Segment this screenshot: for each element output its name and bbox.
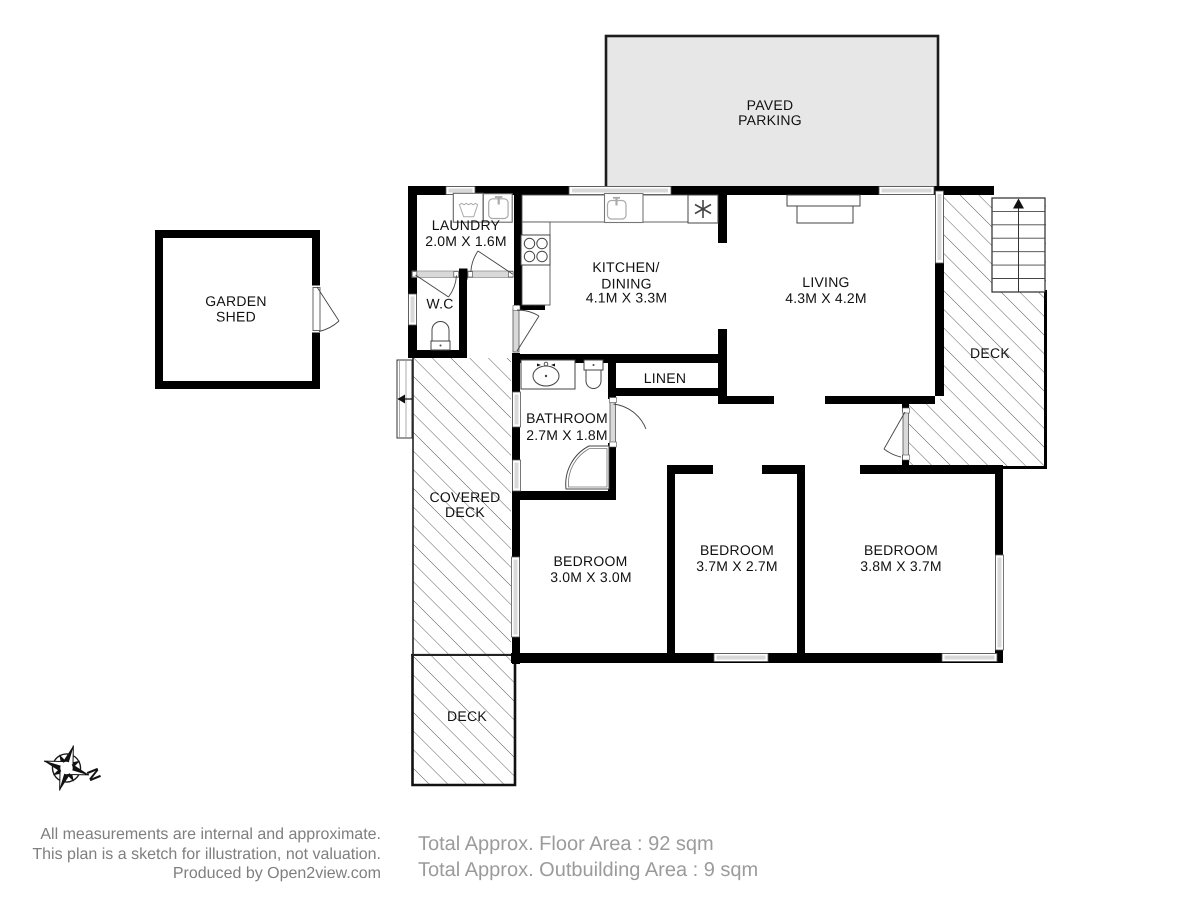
svg-text:All measurements are internal: All measurements are internal and approx… <box>40 826 381 843</box>
svg-text:2.0M X 1.6M: 2.0M X 1.6M <box>425 233 507 249</box>
svg-text:Produced by Open2view.com: Produced by Open2view.com <box>173 865 381 882</box>
svg-text:PARKING: PARKING <box>738 112 802 128</box>
svg-text:N: N <box>83 766 104 784</box>
svg-text:PAVED: PAVED <box>747 97 794 113</box>
svg-text:BEDROOM: BEDROOM <box>700 542 774 558</box>
svg-text:SHED: SHED <box>216 309 256 325</box>
svg-text:4.3M X 4.2M: 4.3M X 4.2M <box>785 290 867 306</box>
svg-text:W.C: W.C <box>426 296 453 312</box>
svg-text:This plan is a sketch for illu: This plan is a sketch for illustration, … <box>32 846 381 863</box>
svg-text:BATHROOM: BATHROOM <box>526 410 608 426</box>
svg-text:DECK: DECK <box>447 708 487 724</box>
svg-text:3.7M X 2.7M: 3.7M X 2.7M <box>696 558 778 574</box>
svg-text:DECK: DECK <box>445 504 485 520</box>
svg-text:BEDROOM: BEDROOM <box>553 553 627 569</box>
svg-text:4.1M X 3.3M: 4.1M X 3.3M <box>586 290 668 306</box>
svg-text:3.0M X 3.0M: 3.0M X 3.0M <box>550 569 632 585</box>
svg-text:3.8M X 3.7M: 3.8M X 3.7M <box>860 558 942 574</box>
svg-text:LIVING: LIVING <box>802 274 849 290</box>
svg-text:DECK: DECK <box>970 345 1010 361</box>
svg-text:BEDROOM: BEDROOM <box>864 542 938 558</box>
svg-text:LINEN: LINEN <box>644 370 686 386</box>
svg-text:COVERED: COVERED <box>430 489 501 505</box>
svg-text:Total Approx. Floor Area : 92: Total Approx. Floor Area : 92 sqm <box>418 833 714 855</box>
svg-text:LAUNDRY: LAUNDRY <box>432 217 501 233</box>
svg-text:2.7M X 1.8M: 2.7M X 1.8M <box>526 427 608 443</box>
svg-text:Total Approx. Outbuilding Area: Total Approx. Outbuilding Area : 9 sqm <box>418 859 758 881</box>
svg-text:GARDEN: GARDEN <box>205 293 266 309</box>
svg-text:KITCHEN/: KITCHEN/ <box>592 259 659 275</box>
